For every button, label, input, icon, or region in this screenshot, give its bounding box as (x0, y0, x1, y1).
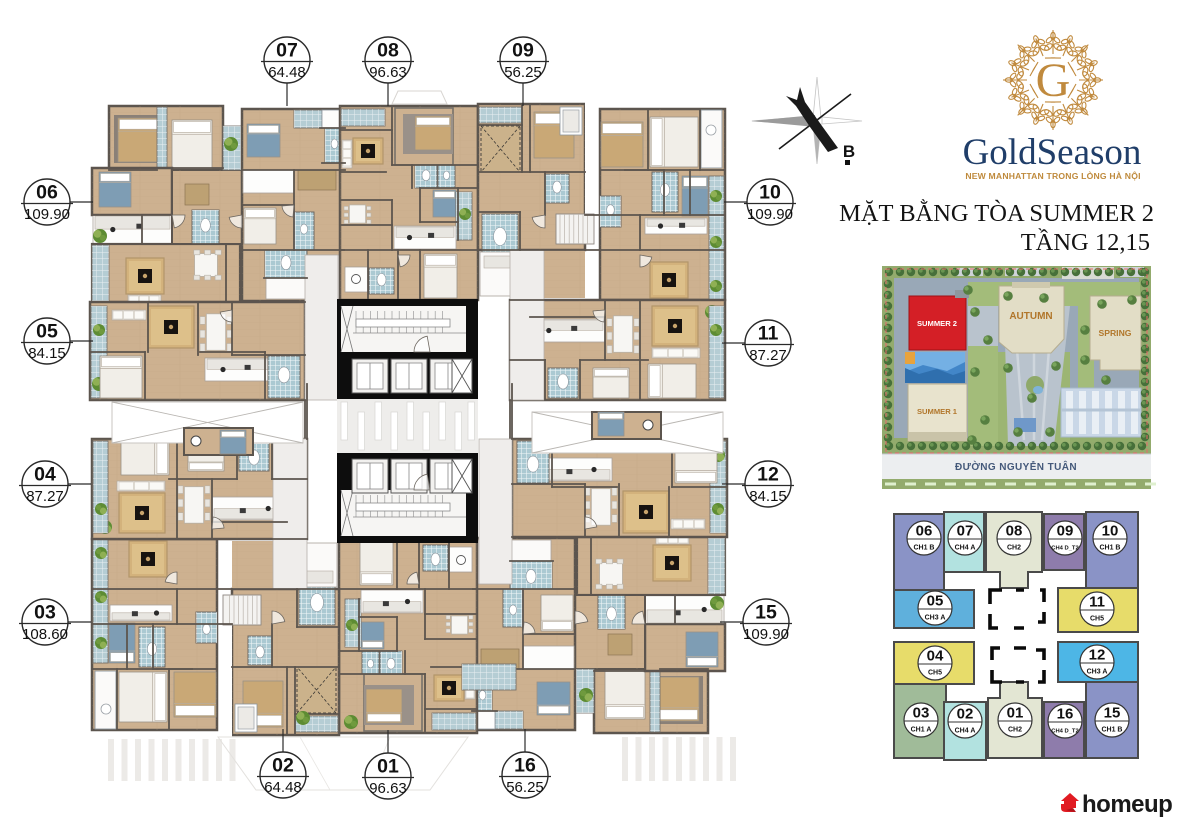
svg-text:10: 10 (759, 182, 781, 204)
svg-text:12: 12 (1089, 647, 1106, 664)
svg-text:96.63: 96.63 (369, 780, 407, 797)
svg-text:CH5: CH5 (928, 670, 942, 677)
svg-text:11: 11 (758, 323, 779, 345)
svg-text:108.60: 108.60 (22, 626, 68, 643)
svg-text:64.48: 64.48 (264, 779, 302, 796)
svg-text:CH4 A: CH4 A (955, 545, 976, 552)
svg-text:87.27: 87.27 (26, 488, 64, 505)
svg-text:AUTUMN: AUTUMN (1009, 311, 1052, 322)
svg-text:84.15: 84.15 (28, 345, 66, 362)
svg-text:02: 02 (957, 706, 974, 723)
svg-text:CH1 B: CH1 B (1101, 727, 1122, 734)
svg-text:05: 05 (927, 593, 944, 610)
svg-text:08: 08 (377, 40, 399, 62)
svg-text:09: 09 (512, 40, 534, 62)
svg-text:07: 07 (276, 40, 298, 62)
svg-text:03: 03 (34, 602, 56, 624)
svg-text:04: 04 (927, 648, 944, 665)
svg-text:15: 15 (1104, 705, 1121, 722)
svg-text:12: 12 (757, 464, 779, 486)
svg-text:B: B (843, 142, 855, 161)
svg-text:84.15: 84.15 (749, 488, 787, 505)
svg-text:CH1 B: CH1 B (913, 545, 934, 552)
svg-text:02: 02 (272, 755, 294, 777)
svg-text:10: 10 (1102, 523, 1119, 540)
svg-text:CH5: CH5 (1090, 616, 1104, 623)
svg-text:CH1 A: CH1 A (911, 727, 932, 734)
svg-text:109.90: 109.90 (24, 206, 70, 223)
svg-text:01: 01 (377, 756, 399, 778)
svg-text:06: 06 (36, 182, 58, 204)
svg-text:08: 08 (1006, 523, 1023, 540)
svg-text:09: 09 (1057, 523, 1074, 540)
svg-text:56.25: 56.25 (504, 64, 542, 81)
svg-text:CH2: CH2 (1008, 727, 1022, 734)
svg-text:CH4 D_T2: CH4 D_T2 (1051, 729, 1078, 735)
svg-text:MẶT BẰNG TÒA SUMMER 2: MẶT BẰNG TÒA SUMMER 2 (839, 198, 1154, 227)
svg-text:TẦNG 12,15: TẦNG 12,15 (1021, 227, 1150, 256)
svg-text:87.27: 87.27 (749, 347, 787, 364)
svg-text:07: 07 (957, 523, 974, 540)
svg-text:11: 11 (1089, 594, 1105, 611)
svg-text:16: 16 (1057, 706, 1074, 723)
svg-text:CH1 B: CH1 B (1099, 545, 1120, 552)
svg-text:03: 03 (913, 705, 930, 722)
svg-text:SUMMER 2: SUMMER 2 (917, 319, 957, 328)
svg-text:CH4 A: CH4 A (955, 728, 976, 735)
svg-text:109.90: 109.90 (743, 626, 789, 643)
svg-text:GoldSeason: GoldSeason (963, 132, 1142, 173)
svg-text:SUMMER 1: SUMMER 1 (917, 407, 958, 416)
svg-text:96.63: 96.63 (369, 64, 407, 81)
svg-text:NEW MANHATTAN TRONG LÒNG HÀ NỘ: NEW MANHATTAN TRONG LÒNG HÀ NỘI (965, 170, 1140, 181)
svg-text:CH2: CH2 (1007, 545, 1021, 552)
svg-text:SPRING: SPRING (1099, 328, 1132, 338)
svg-text:64.48: 64.48 (268, 64, 306, 81)
svg-text:04: 04 (34, 464, 56, 486)
svg-text:16: 16 (514, 755, 536, 777)
svg-text:homeup: homeup (1082, 791, 1172, 818)
svg-text:109.90: 109.90 (747, 206, 793, 223)
svg-text:CH3 A: CH3 A (925, 615, 946, 622)
svg-text:CH4 D_T2: CH4 D_T2 (1051, 546, 1078, 552)
svg-text:15: 15 (755, 602, 777, 624)
svg-text:06: 06 (916, 523, 933, 540)
svg-text:01: 01 (1007, 705, 1024, 722)
svg-text:ĐƯỜNG NGUYỄN TUÂN: ĐƯỜNG NGUYỄN TUÂN (955, 460, 1077, 473)
svg-text:G: G (1036, 54, 1071, 107)
svg-text:56.25: 56.25 (506, 779, 544, 796)
svg-text:CH3 A: CH3 A (1087, 669, 1108, 676)
svg-text:05: 05 (36, 321, 58, 343)
